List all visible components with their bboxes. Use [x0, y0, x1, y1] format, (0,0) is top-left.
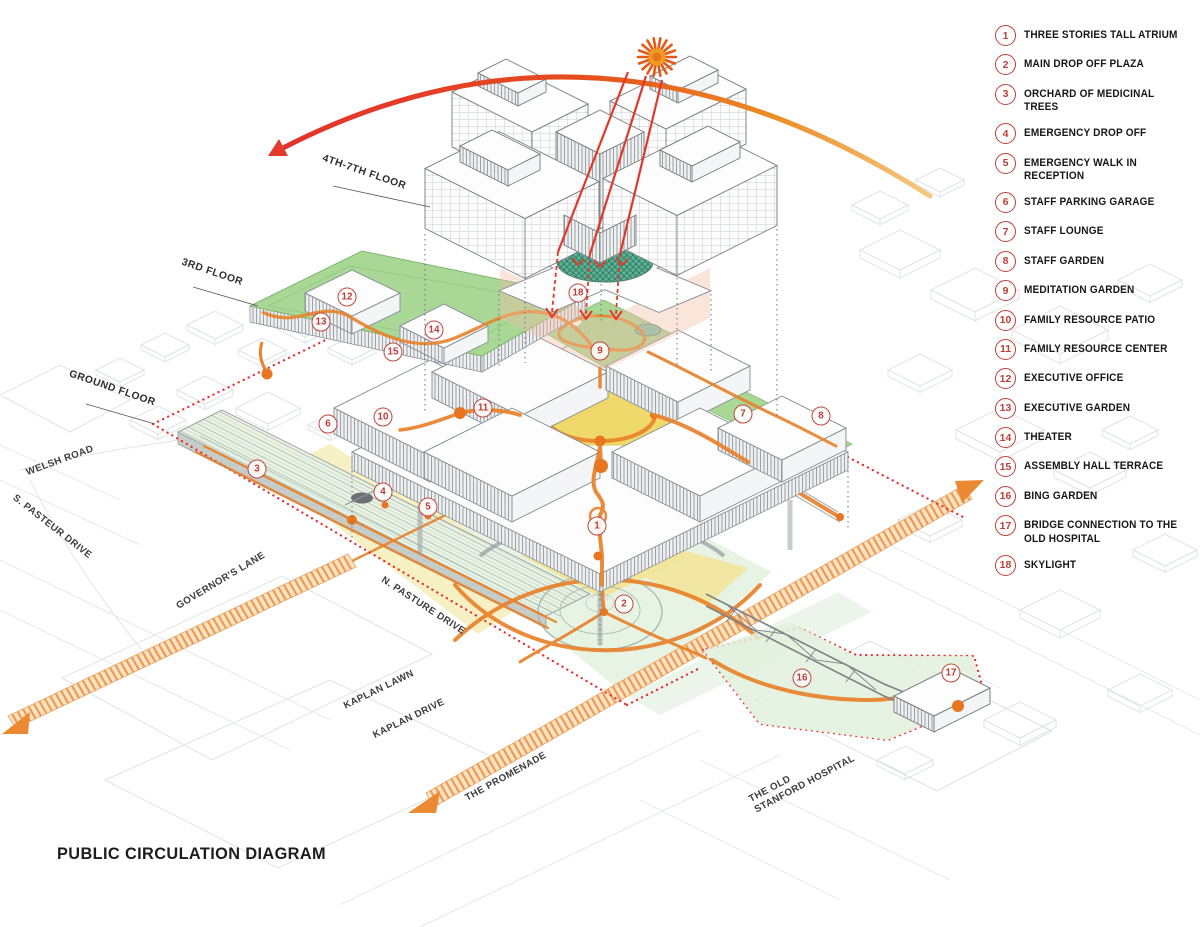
- diagram-marker-13: 13: [312, 313, 331, 332]
- diagram-marker-3: 3: [248, 460, 267, 479]
- public-circulation-diagram: 4TH-7TH FLOOR3RD FLOORGROUND FLOOR WELSH…: [0, 0, 1200, 927]
- legend-item-label: THEATER: [1024, 427, 1072, 445]
- legend-item-12: 12EXECUTIVE OFFICE: [995, 368, 1200, 389]
- diagram-marker-12: 12: [338, 288, 357, 307]
- legend: 1THREE STORIES TALL ATRIUM2MAIN DROP OFF…: [995, 25, 1200, 584]
- legend-item-number: 8: [995, 251, 1016, 272]
- legend-item-label: SKYLIGHT: [1024, 555, 1076, 573]
- legend-item-number: 1: [995, 25, 1016, 46]
- legend-item-label: FAMILY RESOURCE PATIO: [1024, 310, 1155, 328]
- legend-item-number: 10: [995, 310, 1016, 331]
- legend-item-label: EMERGENCY DROP OFF: [1024, 123, 1146, 141]
- diagram-marker-9: 9: [591, 342, 610, 361]
- diagram-marker-5: 5: [419, 498, 438, 517]
- legend-item-label: MEDITATION GARDEN: [1024, 280, 1134, 298]
- diagram-marker-4: 4: [374, 483, 393, 502]
- legend-item-number: 14: [995, 427, 1016, 448]
- legend-item-number: 18: [995, 555, 1016, 576]
- legend-item-label: ORCHARD OF MEDICINAL TREES: [1024, 84, 1188, 115]
- diagram-marker-10: 10: [374, 408, 393, 427]
- legend-item-number: 9: [995, 280, 1016, 301]
- legend-item-number: 17: [995, 515, 1016, 536]
- legend-item-1: 1THREE STORIES TALL ATRIUM: [995, 25, 1200, 46]
- legend-item-number: 6: [995, 192, 1016, 213]
- legend-item-label: STAFF PARKING GARAGE: [1024, 192, 1155, 210]
- legend-item-label: EMERGENCY WALK IN RECEPTION: [1024, 153, 1188, 184]
- legend-item-label: FAMILY RESOURCE CENTER: [1024, 339, 1168, 357]
- legend-item-label: STAFF LOUNGE: [1024, 221, 1104, 239]
- legend-item-17: 17BRIDGE CONNECTION TO THE OLD HOSPITAL: [995, 515, 1200, 546]
- diagram-marker-18: 18: [569, 284, 588, 303]
- legend-item-16: 16BING GARDEN: [995, 486, 1200, 507]
- legend-item-label: EXECUTIVE OFFICE: [1024, 368, 1123, 386]
- legend-item-number: 5: [995, 153, 1016, 174]
- legend-item-10: 10FAMILY RESOURCE PATIO: [995, 310, 1200, 331]
- diagram-marker-16: 16: [793, 669, 812, 688]
- legend-item-number: 7: [995, 221, 1016, 242]
- page-title: PUBLIC CIRCULATION DIAGRAM: [57, 844, 326, 864]
- diagram-marker-2: 2: [615, 595, 634, 614]
- diagram-marker-1: 1: [588, 517, 607, 536]
- legend-item-15: 15ASSEMBLY HALL TERRACE: [995, 456, 1200, 477]
- legend-item-2: 2MAIN DROP OFF PLAZA: [995, 54, 1200, 75]
- legend-item-11: 11FAMILY RESOURCE CENTER: [995, 339, 1200, 360]
- legend-item-number: 16: [995, 486, 1016, 507]
- legend-item-7: 7STAFF LOUNGE: [995, 221, 1200, 242]
- legend-item-label: EXECUTIVE GARDEN: [1024, 398, 1130, 416]
- diagram-marker-17: 17: [942, 664, 961, 683]
- legend-item-label: STAFF GARDEN: [1024, 251, 1104, 269]
- legend-item-5: 5EMERGENCY WALK IN RECEPTION: [995, 153, 1200, 184]
- legend-item-number: 13: [995, 398, 1016, 419]
- diagram-marker-7: 7: [734, 405, 753, 424]
- legend-item-label: BING GARDEN: [1024, 486, 1097, 504]
- legend-item-4: 4EMERGENCY DROP OFF: [995, 123, 1200, 144]
- legend-item-number: 12: [995, 368, 1016, 389]
- legend-item-3: 3ORCHARD OF MEDICINAL TREES: [995, 84, 1200, 115]
- legend-item-label: ASSEMBLY HALL TERRACE: [1024, 456, 1163, 474]
- legend-item-13: 13EXECUTIVE GARDEN: [995, 398, 1200, 419]
- legend-item-label: BRIDGE CONNECTION TO THE OLD HOSPITAL: [1024, 515, 1188, 546]
- legend-item-number: 4: [995, 123, 1016, 144]
- legend-item-label: THREE STORIES TALL ATRIUM: [1024, 25, 1178, 43]
- legend-item-number: 3: [995, 84, 1016, 105]
- legend-item-6: 6STAFF PARKING GARAGE: [995, 192, 1200, 213]
- legend-item-number: 11: [995, 339, 1016, 360]
- diagram-marker-8: 8: [812, 407, 831, 426]
- legend-item-18: 18SKYLIGHT: [995, 555, 1200, 576]
- legend-item-number: 15: [995, 456, 1016, 477]
- diagram-marker-6: 6: [319, 415, 338, 434]
- legend-item-label: MAIN DROP OFF PLAZA: [1024, 54, 1144, 72]
- legend-item-8: 8STAFF GARDEN: [995, 251, 1200, 272]
- legend-item-number: 2: [995, 54, 1016, 75]
- legend-item-14: 14THEATER: [995, 427, 1200, 448]
- legend-item-9: 9MEDITATION GARDEN: [995, 280, 1200, 301]
- diagram-marker-11: 11: [474, 399, 493, 418]
- diagram-marker-15: 15: [384, 343, 403, 362]
- tower-4th-7th-floor: [425, 56, 777, 279]
- diagram-marker-14: 14: [425, 321, 444, 340]
